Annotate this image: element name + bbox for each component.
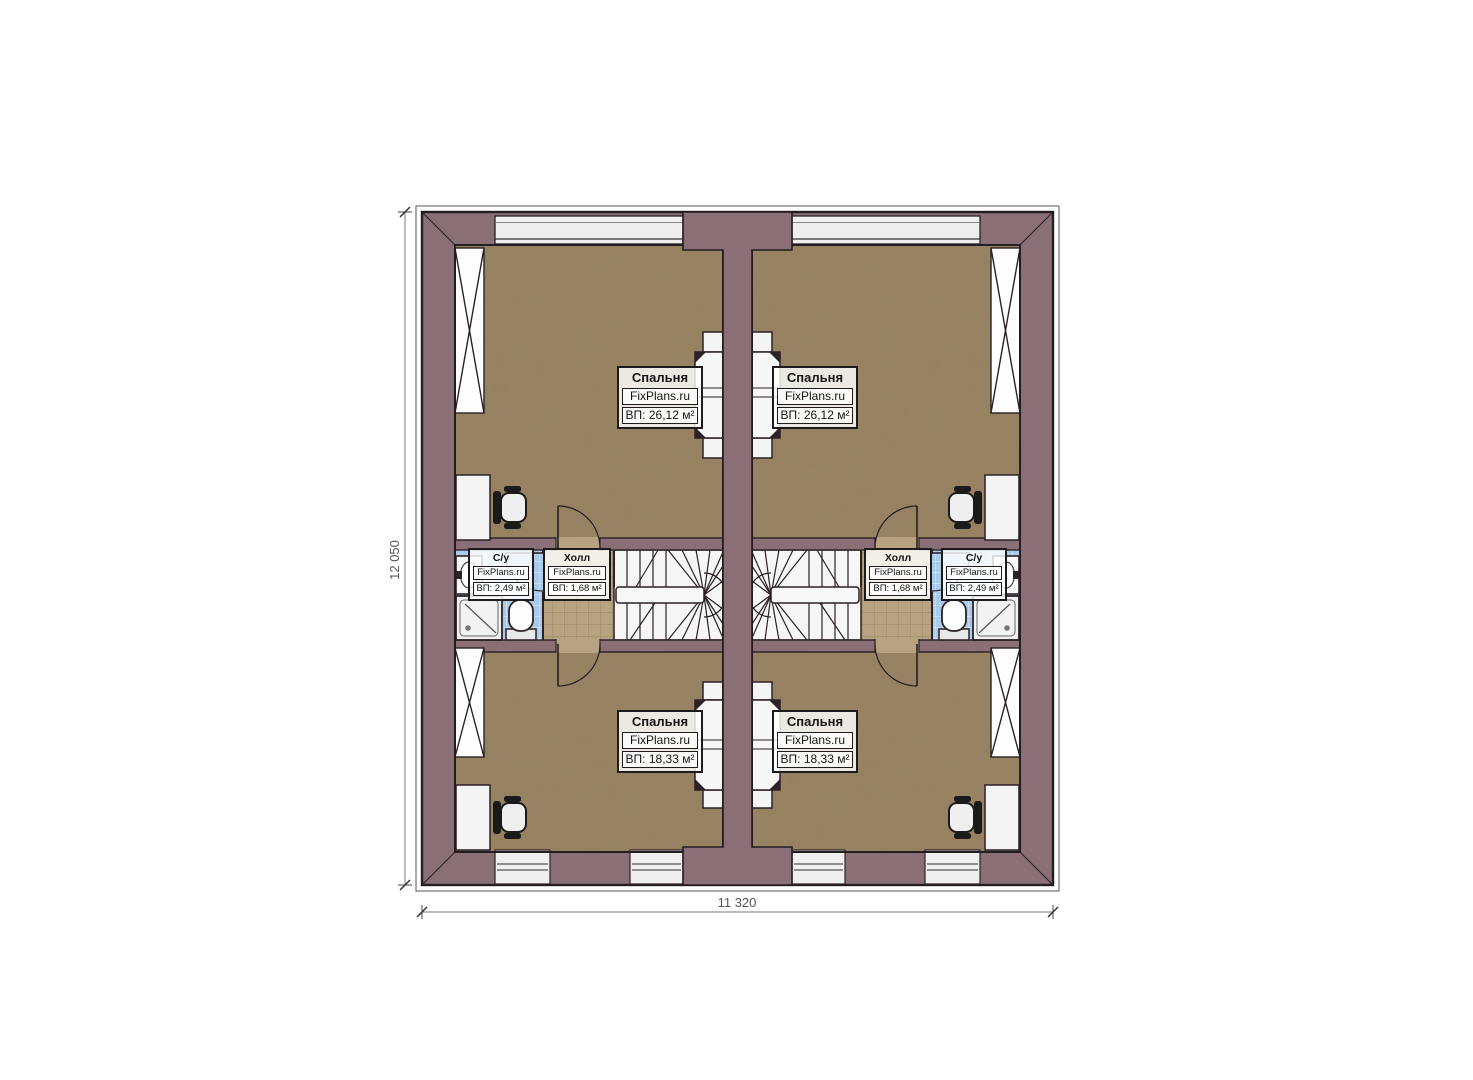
room-label-bath-left: С/у FixPlans.ru ВП: 2,49 м² xyxy=(468,548,534,601)
room-label-bedroom-top-left: Спальня FixPlans.ru ВП: 26,12 м² xyxy=(617,366,703,429)
room-area: ВП: 1,68 м² xyxy=(869,582,927,596)
brand-watermark: FixPlans.ru xyxy=(622,388,698,405)
brand-watermark: FixPlans.ru xyxy=(548,566,606,580)
brand-watermark: FixPlans.ru xyxy=(473,566,529,580)
room-label-bedroom-top-right: Спальня FixPlans.ru ВП: 26,12 м² xyxy=(772,366,858,429)
room-label-hall-left: Холл FixPlans.ru ВП: 1,68 м² xyxy=(543,548,611,601)
room-area: ВП: 1,68 м² xyxy=(548,582,606,596)
room-name: С/у xyxy=(946,552,1002,564)
room-area: ВП: 26,12 м² xyxy=(777,407,853,424)
room-name: Спальня xyxy=(622,370,698,386)
room-label-bath-right: С/у FixPlans.ru ВП: 2,49 м² xyxy=(941,548,1007,601)
brand-watermark: FixPlans.ru xyxy=(869,566,927,580)
room-area: ВП: 2,49 м² xyxy=(946,582,1002,596)
room-name: Холл xyxy=(869,552,927,564)
floor-plan: 12 050 11 320 Спальня FixPlans.ru ВП: 26… xyxy=(0,0,1473,1080)
room-name: С/у xyxy=(473,552,529,564)
room-label-bedroom-bottom-left: Спальня FixPlans.ru ВП: 18,33 м² xyxy=(617,710,703,773)
brand-watermark: FixPlans.ru xyxy=(777,388,853,405)
room-area: ВП: 18,33 м² xyxy=(777,751,853,768)
room-name: Холл xyxy=(548,552,606,564)
brand-watermark: FixPlans.ru xyxy=(777,732,853,749)
room-area: ВП: 2,49 м² xyxy=(473,582,529,596)
room-name: Спальня xyxy=(777,370,853,386)
room-name: Спальня xyxy=(622,714,698,730)
plan-drawing: 12 050 11 320 xyxy=(0,0,1473,1080)
room-area: ВП: 26,12 м² xyxy=(622,407,698,424)
brand-watermark: FixPlans.ru xyxy=(622,732,698,749)
room-label-bedroom-bottom-right: Спальня FixPlans.ru ВП: 18,33 м² xyxy=(772,710,858,773)
room-label-hall-right: Холл FixPlans.ru ВП: 1,68 м² xyxy=(864,548,932,601)
dimension-width-label: 11 320 xyxy=(718,895,757,910)
room-area: ВП: 18,33 м² xyxy=(622,751,698,768)
room-name: Спальня xyxy=(777,714,853,730)
brand-watermark: FixPlans.ru xyxy=(946,566,1002,580)
dimension-height-label: 12 050 xyxy=(387,540,402,580)
